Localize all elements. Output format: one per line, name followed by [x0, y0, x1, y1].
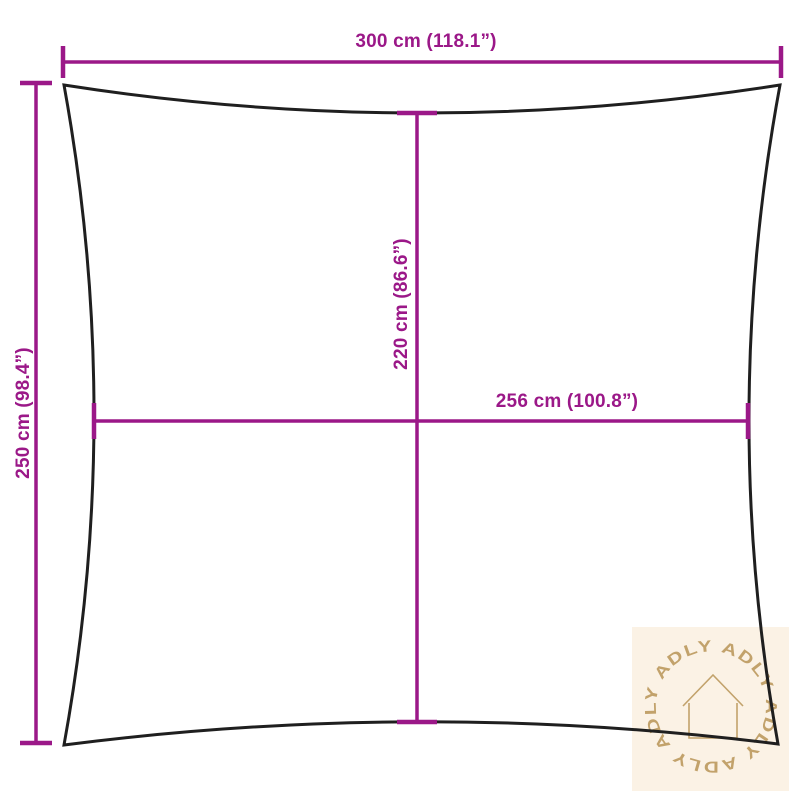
dimension-line-inner-width — [94, 403, 748, 439]
label-overall-width: 300 cm (118.1”) — [355, 31, 496, 53]
diagram-linework — [0, 0, 800, 800]
label-overall-height: 250 cm (98.4”) — [13, 347, 35, 479]
product-dimension-diagram: ADLY ADLY ADLY ADLY ADLY — [0, 0, 800, 800]
dimension-line-inner-height — [397, 113, 437, 722]
label-inner-width: 256 cm (100.8”) — [496, 391, 638, 413]
label-inner-height: 220 cm (86.6”) — [391, 238, 413, 370]
sail-outline — [64, 85, 780, 745]
